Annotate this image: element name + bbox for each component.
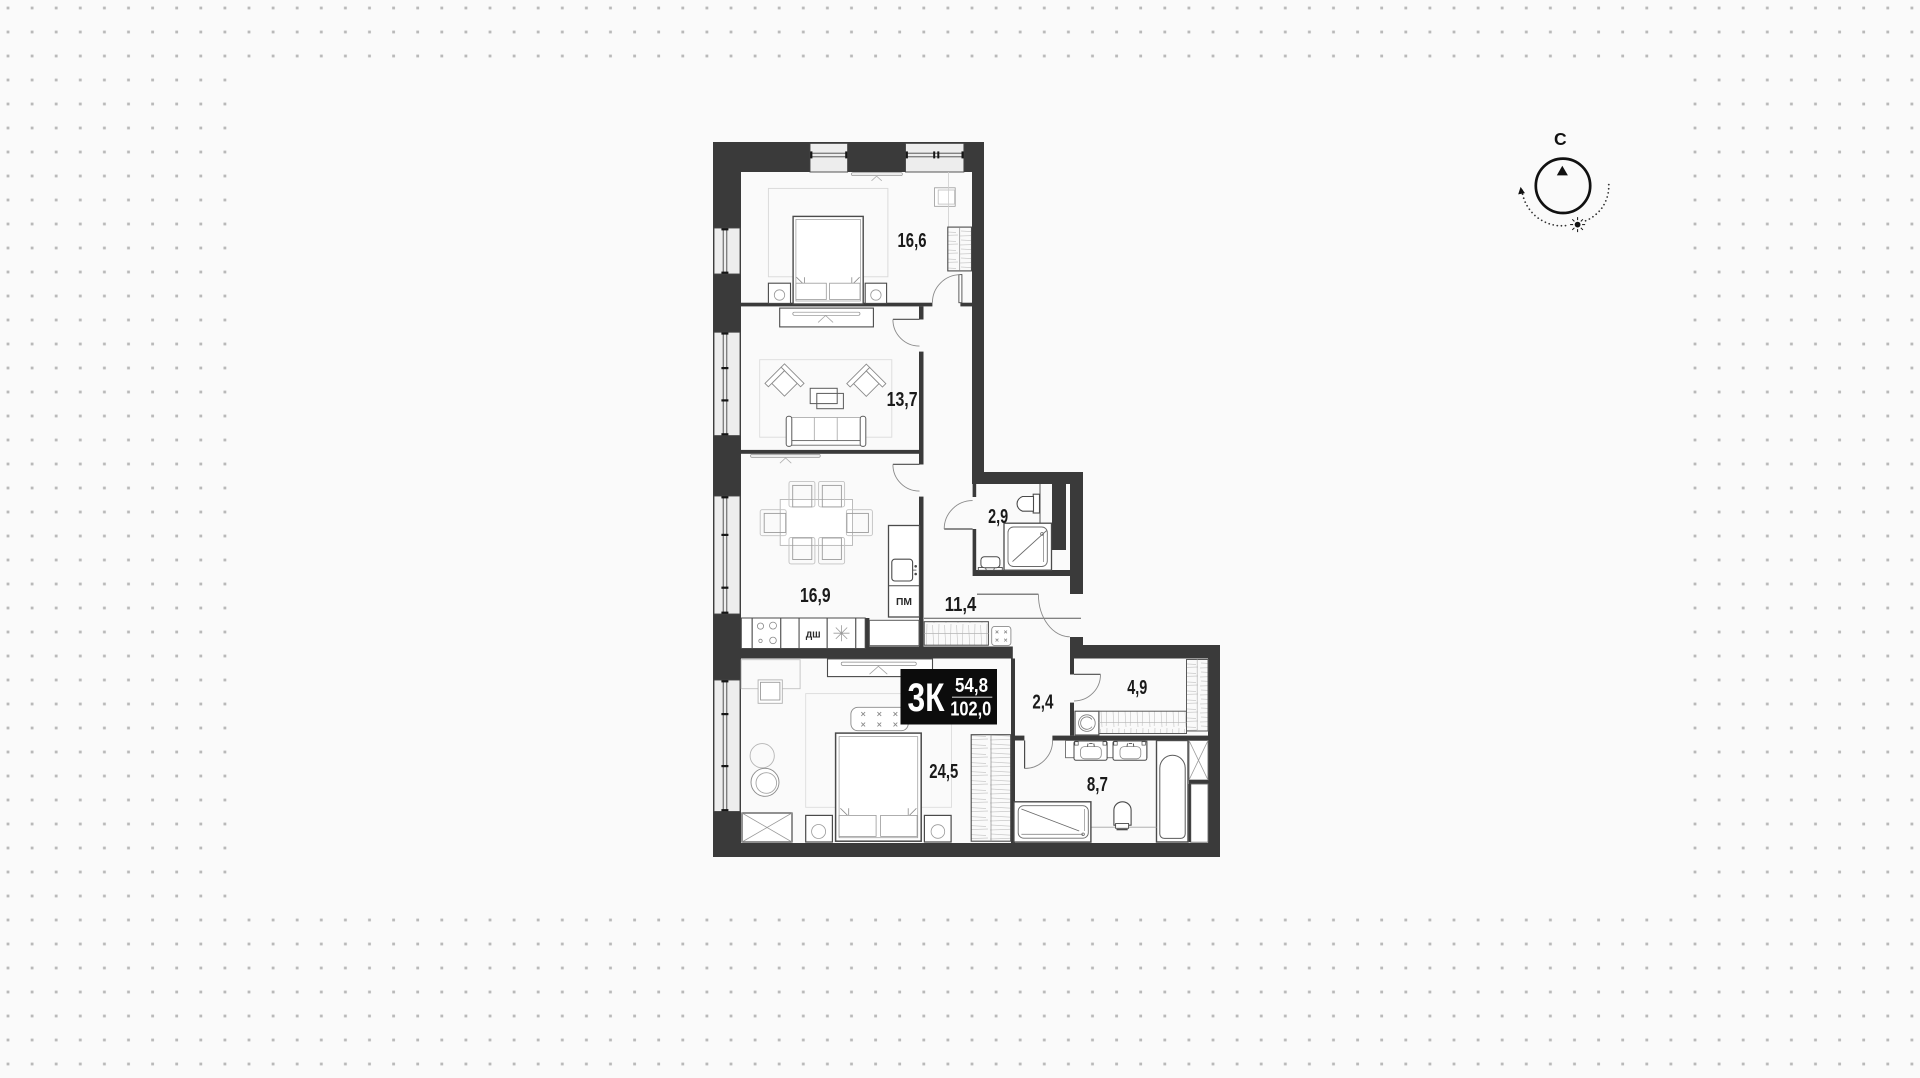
svg-text:ПМ: ПМ	[896, 596, 912, 608]
svg-text:2,4: 2,4	[1032, 691, 1053, 714]
svg-text:С: С	[1554, 129, 1567, 149]
svg-text:13,7: 13,7	[887, 388, 918, 411]
svg-text:8,7: 8,7	[1087, 773, 1108, 796]
svg-text:54,8: 54,8	[955, 674, 988, 697]
svg-text:24,5: 24,5	[929, 760, 958, 783]
svg-text:дш: дш	[806, 628, 821, 640]
svg-text:2,9: 2,9	[988, 505, 1008, 528]
svg-text:16,6: 16,6	[898, 229, 927, 252]
svg-text:3К: 3К	[908, 676, 945, 720]
svg-text:11,4: 11,4	[945, 593, 977, 616]
svg-text:4,9: 4,9	[1127, 676, 1147, 699]
svg-text:102,0: 102,0	[950, 698, 991, 721]
svg-text:16,9: 16,9	[800, 584, 831, 607]
